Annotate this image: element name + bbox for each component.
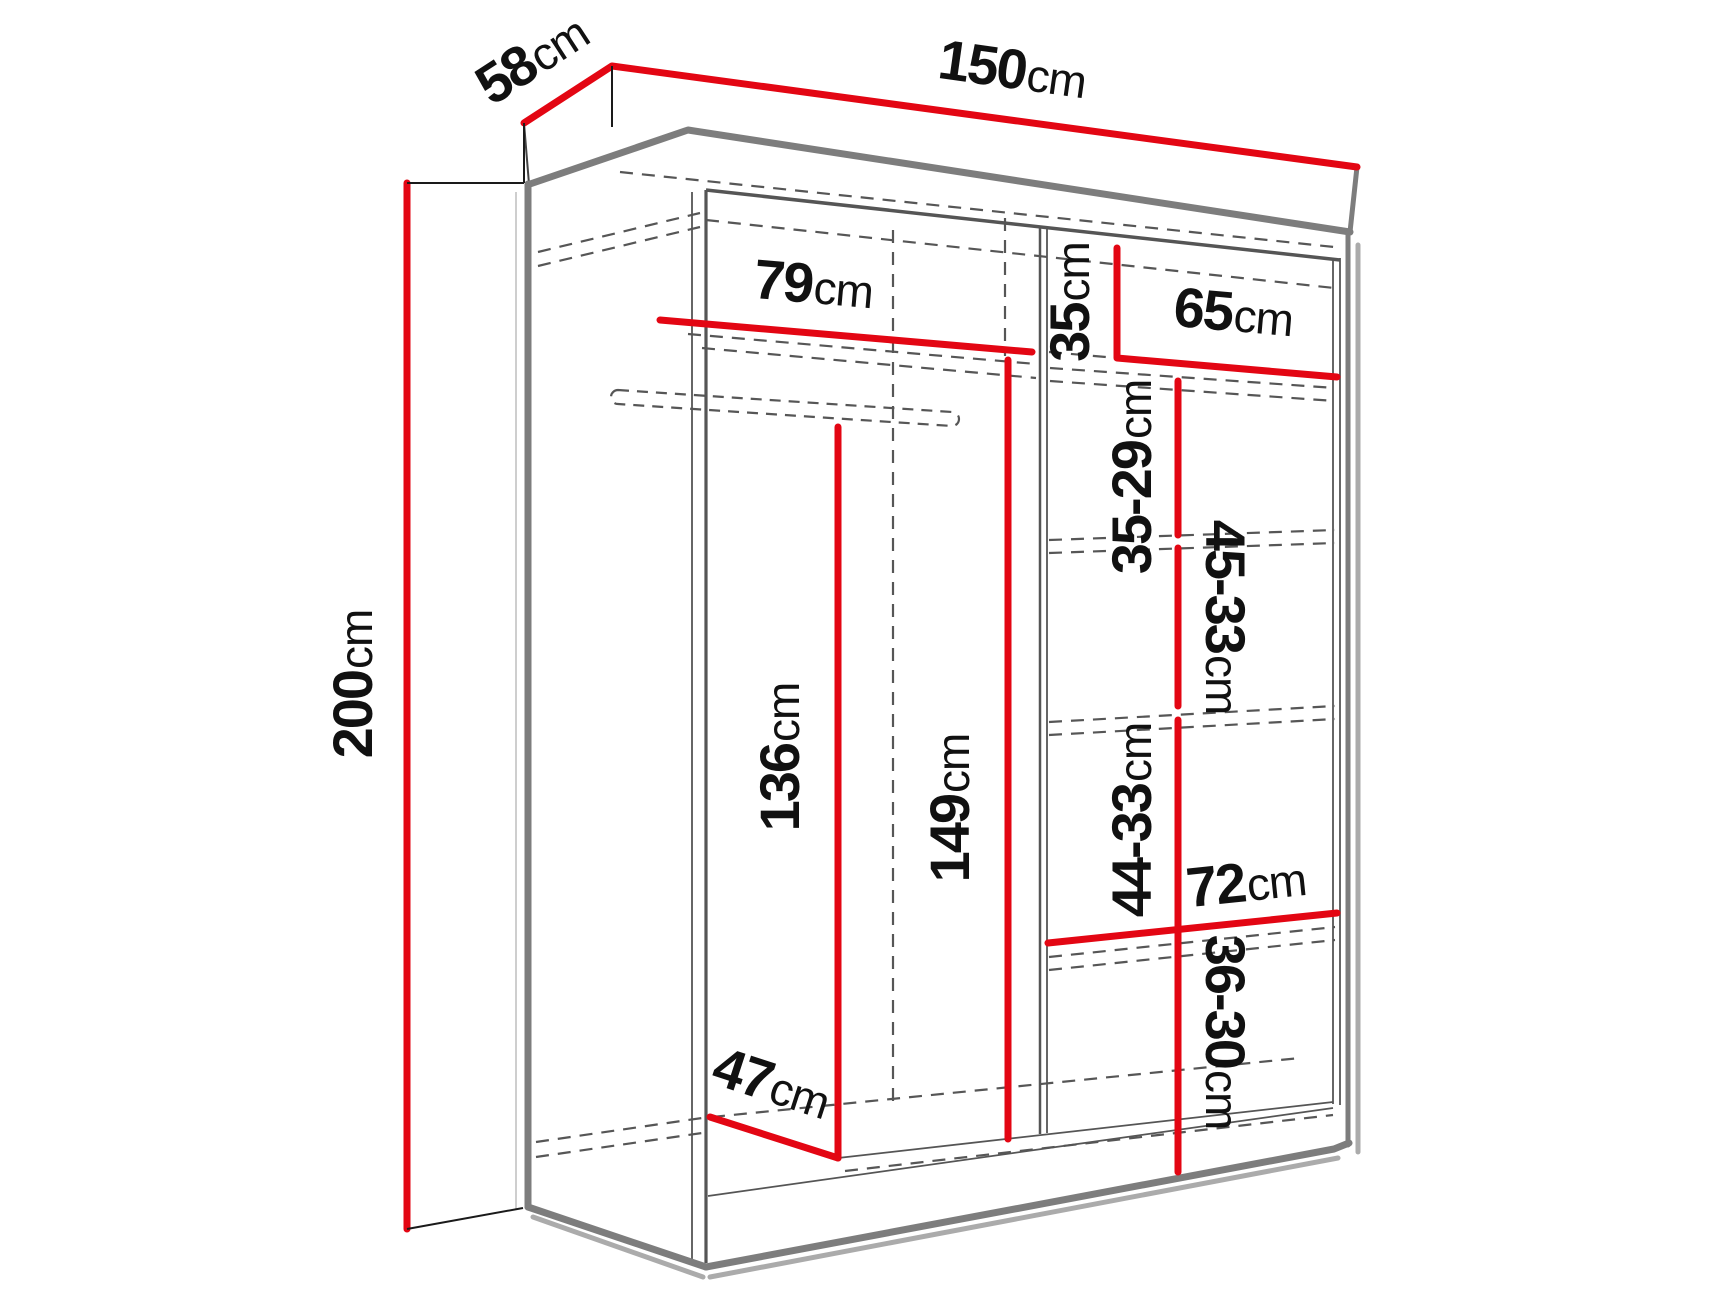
connector-height-bottom bbox=[407, 1208, 523, 1229]
dim-label-hanging-height: 136cm bbox=[748, 683, 811, 832]
dimension-labels: 58cm 150cm 200cm 79cm 35cm 65cm 35-29cm … bbox=[321, 0, 1309, 1131]
floor-front-edge bbox=[838, 1102, 1333, 1158]
hanging-rail-hidden-outline bbox=[611, 390, 959, 426]
dim-label-right-top-space: 35cm bbox=[1038, 242, 1101, 362]
bottom-left-shadow bbox=[533, 1217, 703, 1277]
right-shelf4-hidden-edge-2 bbox=[1049, 940, 1335, 970]
dim-label-interior-depth: 47cm bbox=[705, 1034, 838, 1131]
dim-label-right-space-2: 45-33cm bbox=[1194, 520, 1257, 715]
dim-label-left-interior-height: 149cm bbox=[918, 734, 981, 883]
dim-label-right-shelf-width: 65cm bbox=[1171, 275, 1296, 348]
wardrobe-dimension-diagram: 58cm 150cm 200cm 79cm 35cm 65cm 35-29cm … bbox=[0, 0, 1726, 1295]
right-shelf2-hidden-edge-1 bbox=[1049, 530, 1335, 540]
bottom-depth-edge bbox=[528, 1207, 706, 1267]
cornice-right-edge bbox=[1350, 167, 1357, 232]
diagram-canvas: 58cm 150cm 200cm 79cm 35cm 65cm 35-29cm … bbox=[0, 0, 1726, 1295]
dim-label-right-space-1: 35-29cm bbox=[1100, 380, 1163, 575]
dim-label-width: 150cm bbox=[935, 27, 1091, 110]
right-shelf2-hidden-edge-2 bbox=[1049, 543, 1335, 553]
plinth-hidden-edge-left-2 bbox=[536, 1133, 702, 1157]
dim-label-right-space-4: 36-30cm bbox=[1194, 935, 1257, 1130]
dim-label-right-space-3: 44-33cm bbox=[1100, 723, 1163, 918]
bottom-front-edge bbox=[706, 1143, 1349, 1267]
dimension-connector-lines bbox=[407, 66, 612, 1229]
right-shelf3-hidden-edge-2 bbox=[1049, 719, 1335, 735]
dim-label-height: 200cm bbox=[321, 610, 384, 759]
dim-label-left-shelf-width: 79cm bbox=[751, 247, 876, 320]
opening-top-edge bbox=[706, 190, 1340, 260]
dim-label-depth: 58cm bbox=[464, 0, 599, 117]
bottom-front-shadow bbox=[710, 1158, 1338, 1277]
left-shelf-hidden-edge-2 bbox=[702, 348, 1036, 378]
right-shelf3-hidden-edge-1 bbox=[1049, 706, 1335, 722]
plinth-hidden-edge-left-1 bbox=[536, 1118, 702, 1142]
dim-label-bottom-shelf-width: 72cm bbox=[1183, 844, 1309, 919]
